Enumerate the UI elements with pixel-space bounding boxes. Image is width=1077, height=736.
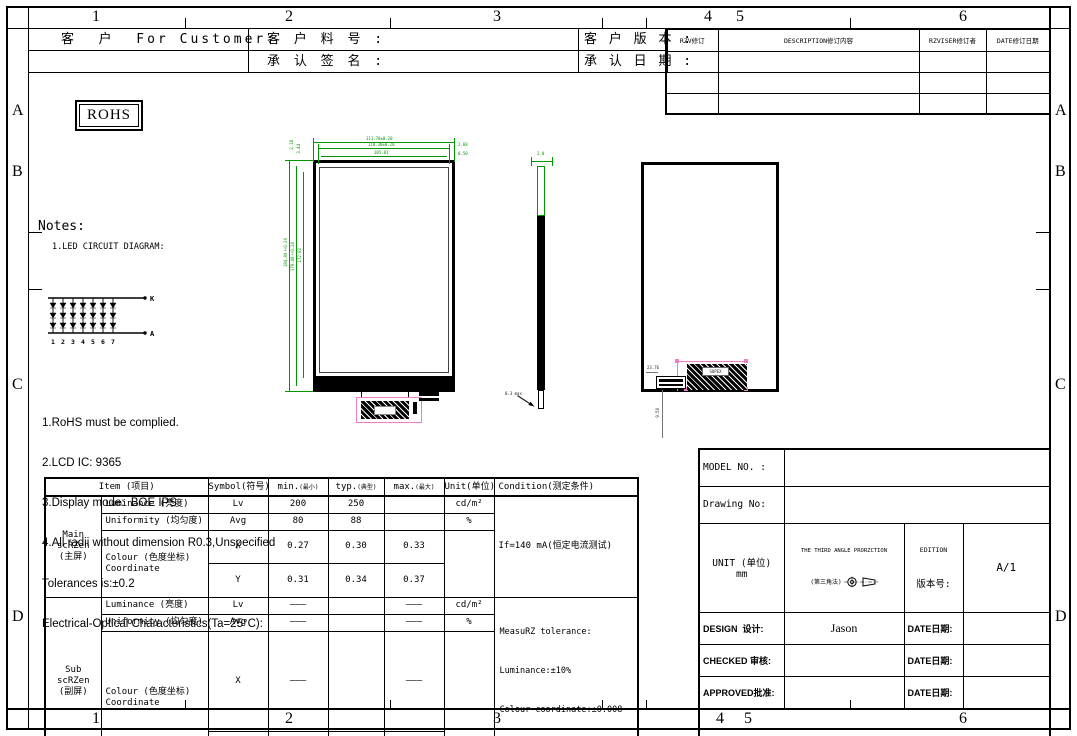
spec-item: Colour (色度坐标)Coordinate bbox=[101, 631, 208, 736]
back-fpc-connector bbox=[656, 376, 686, 389]
led-pin-2: 2 bbox=[61, 338, 65, 346]
tick bbox=[390, 18, 391, 28]
customer-cell: 客 户 For Customer: bbox=[28, 28, 249, 51]
checked-value bbox=[784, 644, 904, 676]
projection-cell: THE THIRD ANGLE PRORZCTION (第三角法) bbox=[784, 523, 904, 612]
rev-cell bbox=[986, 93, 1050, 114]
row-label-right-b: B bbox=[1055, 163, 1066, 181]
spec-max: ——— bbox=[384, 631, 444, 732]
spec-min: 0.31 bbox=[268, 564, 328, 598]
dim-left-1: 2.18 bbox=[290, 140, 294, 150]
note-line: 1.RoHS must be complied. bbox=[42, 417, 275, 430]
spec-typ: 250 bbox=[328, 496, 384, 513]
tick bbox=[1036, 232, 1050, 233]
edition-value: A/1 bbox=[963, 523, 1050, 612]
drawing-sheet: 1 2 3 4 5 6 1 2 3 4 5 6 A B C D A B C D … bbox=[0, 0, 1077, 736]
checked-date-label: DATE日期: bbox=[904, 644, 963, 676]
spec-typ: 88 bbox=[328, 513, 384, 530]
side-dim-top: 2.0 bbox=[537, 152, 544, 156]
rohs-badge: ROHS bbox=[75, 100, 143, 131]
rev-cell bbox=[919, 93, 986, 114]
spec-h-item: Item (项目) bbox=[45, 478, 208, 496]
rev-cell bbox=[666, 72, 718, 93]
spec-typ bbox=[328, 614, 384, 631]
spec-unit: cd/m² bbox=[444, 496, 494, 513]
approved-value bbox=[784, 676, 904, 708]
model-no-label: MODEL NO. : bbox=[699, 449, 784, 486]
row-label-right-d: D bbox=[1055, 608, 1067, 626]
spec-typ bbox=[328, 631, 384, 732]
rev-cell bbox=[666, 93, 718, 114]
spec-symbol: Avg bbox=[208, 513, 268, 530]
spec-min: 200 bbox=[268, 496, 328, 513]
spec-max bbox=[384, 496, 444, 513]
led-pin-6: 6 bbox=[101, 338, 105, 346]
model-no-value bbox=[784, 449, 1050, 486]
spec-condition-sub: MeasuRZ tolerance: Luminance:±10% Colour… bbox=[494, 597, 638, 736]
spec-max bbox=[384, 513, 444, 530]
back-connector-label: SUPEX bbox=[709, 370, 721, 374]
rev-cell bbox=[919, 72, 986, 93]
spec-min: ——— bbox=[268, 597, 328, 614]
spec-max: ——— bbox=[384, 614, 444, 631]
led-diagram-title: 1.LED CIRCUIT DIAGRAM: bbox=[52, 243, 165, 252]
spec-item: Luminance (亮度) bbox=[101, 597, 208, 614]
dim-ext bbox=[285, 391, 313, 392]
frame-line-left bbox=[28, 6, 29, 730]
approved-date-value bbox=[963, 676, 1050, 708]
col-label-top-4: 4 bbox=[704, 8, 712, 26]
dim-width-mid: 110.30±0.20 bbox=[368, 143, 395, 147]
note-line: 2.LCD IC: 9365 bbox=[42, 457, 275, 470]
spec-symbol: Lv bbox=[208, 496, 268, 513]
title-block-empty bbox=[699, 708, 1050, 736]
spec-h-unit: Unit(单位) bbox=[444, 478, 494, 496]
back-fpc-bar bbox=[659, 379, 683, 382]
spec-typ bbox=[328, 597, 384, 614]
fpc-label bbox=[374, 406, 396, 415]
col-label-top-5: 5 bbox=[736, 8, 744, 26]
row-label-left-c: C bbox=[12, 376, 23, 394]
spec-min: ——— bbox=[268, 631, 328, 732]
spec-max: ——— bbox=[384, 732, 444, 736]
approved-date-label: DATE日期: bbox=[904, 676, 963, 708]
rev-cell bbox=[666, 51, 718, 72]
spec-unit: % bbox=[444, 614, 494, 631]
approve-date-cell: 承 认 日 期 : bbox=[578, 50, 668, 73]
back-view-outline bbox=[641, 162, 779, 392]
rev-cell bbox=[986, 51, 1050, 72]
dim-line bbox=[303, 172, 304, 378]
dim-ext bbox=[552, 157, 553, 166]
led-pin-5: 5 bbox=[91, 338, 95, 346]
rohs-label: ROHS bbox=[87, 107, 131, 124]
dim-left-2: 3.44 bbox=[297, 144, 301, 154]
title-block: MODEL NO. : Drawing No: UNIT (单位)mm THE … bbox=[698, 448, 1051, 736]
row-label-left-b: B bbox=[12, 163, 23, 181]
spec-typ bbox=[328, 732, 384, 736]
tick bbox=[646, 700, 647, 710]
tick bbox=[1036, 289, 1050, 290]
back-fpc-bar bbox=[659, 384, 683, 386]
led-anode-label: A bbox=[150, 330, 155, 338]
side-view-body bbox=[537, 216, 545, 390]
rohs-inner-border: ROHS bbox=[79, 104, 139, 127]
spec-min: 0.27 bbox=[268, 530, 328, 564]
col-label-top-1: 1 bbox=[92, 8, 100, 26]
led-pin-7: 7 bbox=[111, 338, 115, 346]
drawing-no-label: Drawing No: bbox=[699, 486, 784, 523]
dim-height-outer: 184.80±0.20 bbox=[284, 238, 288, 267]
dim-line bbox=[531, 161, 553, 162]
col-label-top-3: 3 bbox=[493, 8, 501, 26]
spec-group-sub: SubscRZen(副屏) bbox=[45, 597, 101, 736]
fpc-pin-bar bbox=[413, 402, 417, 414]
col-label-top-6: 6 bbox=[959, 8, 967, 26]
row-label-right-c: C bbox=[1055, 376, 1066, 394]
spec-typ: 0.30 bbox=[328, 530, 384, 564]
side-view-top-segment bbox=[537, 166, 545, 216]
led-pin-4: 4 bbox=[81, 338, 85, 346]
design-label: DESIGN 设计: bbox=[699, 612, 784, 644]
checked-date-value bbox=[963, 644, 1050, 676]
design-date-value bbox=[963, 612, 1050, 644]
spec-min: 80 bbox=[268, 513, 328, 530]
led-cathode-label: K bbox=[150, 295, 155, 303]
led-pin-3: 3 bbox=[71, 338, 75, 346]
spec-table: Item (项目) Symbol(符号) min.(最小) typ.(典型) m… bbox=[44, 477, 639, 736]
empty-cell bbox=[28, 50, 249, 73]
rev-cell bbox=[986, 72, 1050, 93]
dim-width-inner: 105.81 bbox=[374, 151, 388, 155]
side-view-fpc-tail bbox=[538, 390, 544, 409]
rev-cell bbox=[718, 72, 919, 93]
spec-unit: % bbox=[444, 513, 494, 530]
edition-cell: EDITION 版本号: bbox=[904, 523, 963, 612]
back-dim-left: 23.76 bbox=[647, 366, 659, 370]
tick bbox=[28, 289, 42, 290]
notes-title: Notes: bbox=[38, 220, 85, 234]
spec-item: Colour (色度坐标)Coordinate bbox=[101, 530, 208, 597]
dim-line bbox=[318, 148, 450, 149]
unit-cell: UNIT (单位)mm bbox=[699, 523, 784, 612]
spec-h-min: min.(最小) bbox=[268, 478, 328, 496]
spec-symbol: Y bbox=[208, 732, 268, 736]
spec-h-symbol: Symbol(符号) bbox=[208, 478, 268, 496]
front-view-ledge-band bbox=[316, 376, 452, 389]
rev-cell bbox=[718, 93, 919, 114]
rev-cell bbox=[919, 51, 986, 72]
spec-h-max: max.(最大) bbox=[384, 478, 444, 496]
rev-col-header: RZV修订 bbox=[666, 29, 718, 51]
spec-h-condition: Condition(测定条件) bbox=[494, 478, 638, 496]
dim-ext bbox=[454, 138, 455, 162]
pink-dim-node bbox=[675, 359, 679, 363]
tick bbox=[602, 18, 603, 28]
spec-condition-main: If=140 mA(恒定电流测试) bbox=[494, 496, 638, 597]
sign-cell: 承 认 签 名 : bbox=[248, 50, 579, 73]
spec-min: ——— bbox=[268, 614, 328, 631]
spec-symbol: Avg bbox=[208, 614, 268, 631]
dim-line bbox=[289, 160, 290, 392]
rev-reviser-header: RZVISER修订者 bbox=[919, 29, 986, 51]
front-view-display-area bbox=[319, 167, 449, 373]
rev-cell bbox=[718, 51, 919, 72]
dim-ext bbox=[313, 138, 314, 162]
dim-height-inner: 172.82 bbox=[298, 248, 302, 262]
spec-item: Luminance (亮度) bbox=[101, 496, 208, 513]
spec-typ: 0.34 bbox=[328, 564, 384, 598]
spec-unit bbox=[444, 530, 494, 597]
dim-ext bbox=[318, 144, 319, 164]
tick bbox=[850, 18, 851, 28]
spec-max: 0.33 bbox=[384, 530, 444, 564]
spec-max: 0.37 bbox=[384, 564, 444, 598]
dim-right-2: 0.50 bbox=[458, 152, 468, 156]
rev-date-header: DATE修订日期 bbox=[986, 29, 1050, 51]
dim-ext bbox=[662, 390, 663, 438]
dim-line bbox=[296, 166, 297, 386]
spec-unit bbox=[444, 631, 494, 736]
drawing-no-value bbox=[784, 486, 1050, 523]
spec-max: ——— bbox=[384, 597, 444, 614]
col-label-top-2: 2 bbox=[285, 8, 293, 26]
tick bbox=[646, 18, 647, 28]
approved-label: APPROVED批准: bbox=[699, 676, 784, 708]
back-connector-label-box: SUPEX bbox=[702, 367, 729, 376]
fpc-stiffener-bar bbox=[419, 398, 439, 401]
dim-ext bbox=[531, 157, 532, 166]
row-label-left-a: A bbox=[12, 102, 24, 120]
dim-right-1: 2.68 bbox=[458, 143, 468, 147]
spec-min: ——— bbox=[268, 732, 328, 736]
spec-item: Uniformity (均匀度) bbox=[101, 614, 208, 631]
design-value: Jason bbox=[784, 612, 904, 644]
tick bbox=[185, 18, 186, 28]
spec-symbol: Lv bbox=[208, 597, 268, 614]
led-pin-1: 1 bbox=[51, 338, 55, 346]
dim-height-mid: 179.40±0.20 bbox=[291, 242, 295, 271]
back-dim-bottom: 9.50 bbox=[656, 408, 660, 418]
dim-line bbox=[321, 156, 447, 157]
spec-symbol: X bbox=[208, 631, 268, 732]
spec-unit: cd/m² bbox=[444, 597, 494, 614]
customer-version-cell: 客 户 版 本 : bbox=[578, 28, 668, 51]
spec-symbol: X bbox=[208, 530, 268, 564]
dim-ext bbox=[285, 160, 313, 161]
third-angle-projection-icon bbox=[844, 576, 878, 588]
spec-h-typ: typ.(典型) bbox=[328, 478, 384, 496]
checked-label: CHECKED 审核: bbox=[699, 644, 784, 676]
row-label-right-a: A bbox=[1055, 102, 1067, 120]
dim-ext bbox=[449, 144, 450, 164]
part-no-cell: 客 户 料 号 : bbox=[248, 28, 579, 51]
spec-group-main: MainscRZen(主屏) bbox=[45, 496, 101, 597]
led-circuit-diagram: K A 1 2 3 4 5 6 7 bbox=[44, 288, 164, 348]
revision-table: RZV修订 DESCRIPTION修订内容 RZVISER修订者 DATE修订日… bbox=[665, 28, 1051, 115]
dim-ext bbox=[646, 372, 658, 373]
fpc-stiffener-bar bbox=[419, 392, 439, 396]
dim-width-outer: 111.70±0.20 bbox=[366, 137, 393, 141]
design-date-label: DATE日期: bbox=[904, 612, 963, 644]
spec-symbol: Y bbox=[208, 564, 268, 598]
pink-dim-line bbox=[677, 361, 747, 362]
rev-desc-header: DESCRIPTION修订内容 bbox=[718, 29, 919, 51]
row-label-left-d: D bbox=[12, 608, 24, 626]
spec-item: Uniformity (均匀度) bbox=[101, 513, 208, 530]
pink-dim-node bbox=[744, 359, 748, 363]
